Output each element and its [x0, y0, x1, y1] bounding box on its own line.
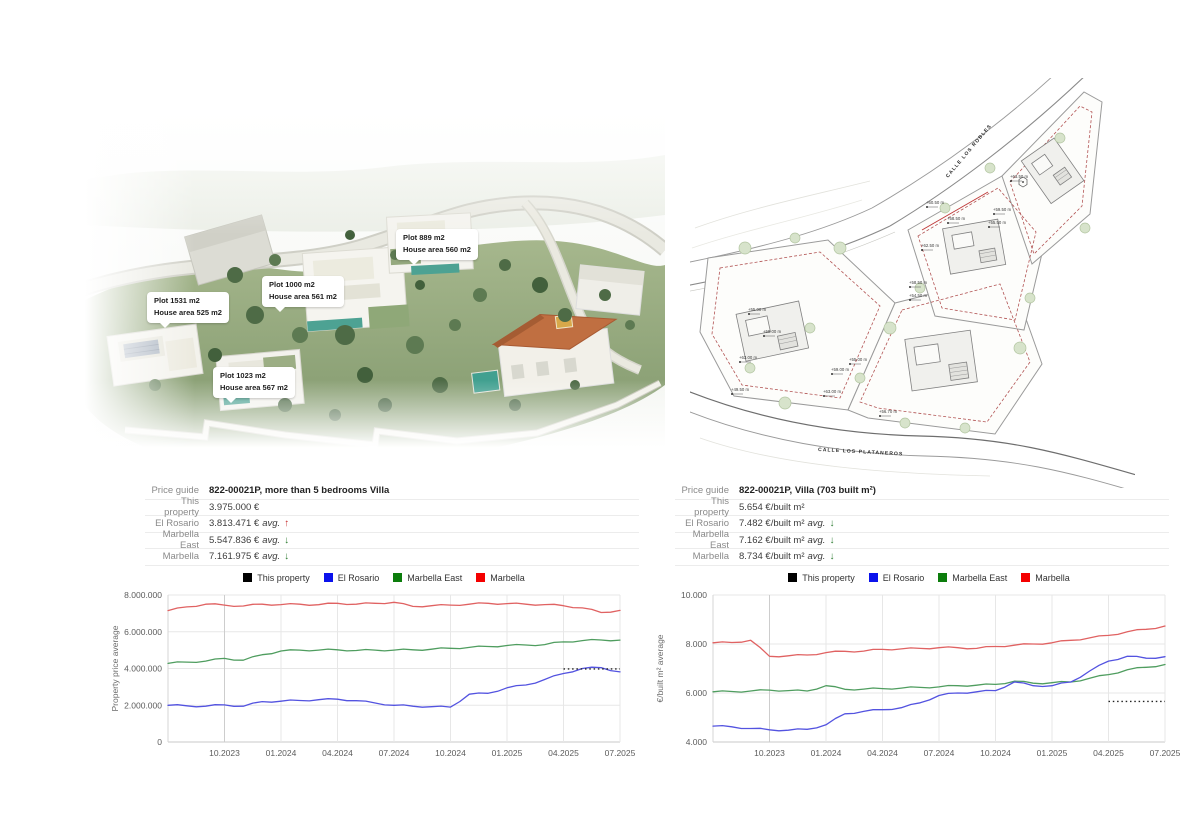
callout-line: House area 560 m2	[403, 244, 471, 256]
legend-item: Marbella East	[938, 573, 1007, 583]
footprint-mid	[943, 219, 1006, 274]
row-label: Marbella	[675, 551, 739, 562]
legend-label: Marbella East	[407, 573, 462, 583]
legend-swatch	[938, 573, 947, 582]
table-row: Marbella8.734 €/built m²avg.↓	[675, 549, 1169, 566]
legend-swatch	[476, 573, 485, 582]
plot-callout-889: Plot 889 m2 House area 560 m2	[396, 229, 478, 260]
price-guide-table-right: Price guide822-00021P, Villa (703 built …	[675, 483, 1169, 566]
svg-text:Property price average: Property price average	[110, 625, 120, 711]
plot-callout-1023: Plot 1023 m2 House area 567 m2	[213, 367, 295, 398]
row-label: El Rosario	[675, 518, 739, 529]
svg-text:+62.50 m: +62.50 m	[921, 243, 939, 248]
sqm-chart-block: This propertyEl RosarioMarbella EastMarb…	[645, 570, 1185, 771]
avg-suffix: avg.	[807, 551, 825, 562]
svg-text:04.2025: 04.2025	[548, 748, 579, 758]
svg-text:10.2023: 10.2023	[754, 748, 785, 758]
svg-text:07.2024: 07.2024	[379, 748, 410, 758]
callout-line: House area 561 m2	[269, 291, 337, 303]
svg-text:+58.50 m: +58.50 m	[909, 280, 927, 285]
svg-text:+56.70 m: +56.70 m	[879, 409, 897, 414]
avg-suffix: avg.	[262, 551, 280, 562]
svg-text:07.2025: 07.2025	[605, 748, 636, 758]
svg-text:+55.50 m: +55.50 m	[988, 220, 1006, 225]
table-row: Marbella7.161.975 €avg.↓	[145, 549, 639, 566]
svg-text:07.2025: 07.2025	[1150, 748, 1181, 758]
svg-text:10.2023: 10.2023	[209, 748, 240, 758]
legend-item: Marbella	[1021, 573, 1070, 583]
legend-item: El Rosario	[869, 573, 925, 583]
svg-text:+59.50 m: +59.50 m	[993, 207, 1011, 212]
svg-text:+54.50 m: +54.50 m	[909, 293, 927, 298]
callout-line: Plot 1000 m2	[269, 279, 337, 291]
footprint-center	[905, 330, 978, 391]
callout-line: Plot 1531 m2	[154, 295, 222, 307]
svg-text:+59.00 m: +59.00 m	[763, 329, 781, 334]
svg-text:01.2024: 01.2024	[811, 748, 842, 758]
table-row: Price guide822-00021P, more than 5 bedro…	[145, 483, 639, 500]
svg-text:01.2025: 01.2025	[492, 748, 523, 758]
trend-down-icon: ↓	[284, 535, 289, 546]
svg-text:10.000: 10.000	[681, 590, 707, 600]
price-guide-table-left: Price guide822-00021P, more than 5 bedro…	[145, 483, 639, 566]
legend-label: El Rosario	[883, 573, 925, 583]
aerial-render-scene	[85, 85, 665, 470]
price-chart-block: This propertyEl RosarioMarbella EastMarb…	[100, 570, 640, 771]
table-row: Marbella East7.162 €/built m²avg.↓	[675, 533, 1169, 550]
legend-label: Marbella East	[952, 573, 1007, 583]
legend-label: El Rosario	[338, 573, 380, 583]
svg-text:+55.00 m: +55.00 m	[748, 307, 766, 312]
avg-suffix: avg.	[807, 518, 825, 529]
table-row: Marbella East5.547.836 €avg.↓	[145, 533, 639, 550]
svg-text:+60.50 m: +60.50 m	[926, 200, 944, 205]
table-row: El Rosario7.482 €/built m²avg.↓	[675, 516, 1169, 533]
svg-text:04.2024: 04.2024	[867, 748, 898, 758]
table-row: This property3.975.000 €	[145, 500, 639, 517]
row-value: 822-00021P, more than 5 bedrooms Villa	[209, 485, 389, 496]
callout-line: Plot 1023 m2	[220, 370, 288, 382]
callout-line: House area 525 m2	[154, 307, 222, 319]
site-plan-image[interactable]: CALLE LOS ROBLES CALLE LOS PLATANEROS +6…	[690, 78, 1135, 488]
legend-swatch	[324, 573, 333, 582]
price-per-sqm-chart[interactable]: 4.0006.0008.00010.00010.202301.202404.20…	[645, 585, 1185, 771]
row-value: 7.162 €/built m²	[739, 535, 804, 546]
legend-label: This property	[802, 573, 855, 583]
svg-text:8.000.000: 8.000.000	[124, 590, 162, 600]
avg-suffix: avg.	[262, 518, 280, 529]
property-valuation-report: { "render": { "callouts": [ {"line1": "P…	[0, 0, 1200, 818]
legend-label: Marbella	[490, 573, 525, 583]
trend-up-icon: ↑	[284, 518, 289, 529]
legend-swatch	[393, 573, 402, 582]
table-row: El Rosario3.813.471 €avg.↑	[145, 516, 639, 533]
legend-swatch	[788, 573, 797, 582]
trend-down-icon: ↓	[284, 551, 289, 562]
row-value: 5.654 €/built m²	[739, 502, 804, 513]
legend-label: Marbella	[1035, 573, 1070, 583]
avg-suffix: avg.	[807, 535, 825, 546]
legend-item: This property	[243, 573, 310, 583]
avg-suffix: avg.	[262, 535, 280, 546]
row-label: El Rosario	[145, 518, 209, 529]
legend-label: This property	[257, 573, 310, 583]
svg-text:+55.00 m: +55.00 m	[849, 357, 867, 362]
svg-text:+58.50 m: +58.50 m	[947, 216, 965, 221]
table-row: Price guide822-00021P, Villa (703 built …	[675, 483, 1169, 500]
trend-down-icon: ↓	[829, 518, 834, 529]
row-value: 3.813.471 €	[209, 518, 259, 529]
svg-text:0: 0	[157, 737, 162, 747]
svg-text:+63.00 m: +63.00 m	[823, 389, 841, 394]
svg-text:+49.50 m: +49.50 m	[731, 387, 749, 392]
svg-text:+59.00 m: +59.00 m	[831, 367, 849, 372]
row-label: Price guide	[145, 485, 209, 496]
svg-text:6.000: 6.000	[686, 688, 708, 698]
row-value: 3.975.000 €	[209, 502, 259, 513]
svg-text:€/built m² average: €/built m² average	[655, 634, 665, 702]
aerial-render-image[interactable]: Plot 1531 m2 House area 525 m2 Plot 1000…	[85, 85, 665, 470]
row-value: 8.734 €/built m²	[739, 551, 804, 562]
chart-legend: This propertyEl RosarioMarbella EastMarb…	[645, 570, 1185, 585]
legend-swatch	[243, 573, 252, 582]
svg-text:10.2024: 10.2024	[435, 748, 466, 758]
svg-text:+63.50 m: +63.50 m	[1010, 174, 1028, 179]
plot-callout-1531: Plot 1531 m2 House area 525 m2	[147, 292, 229, 323]
legend-swatch	[1021, 573, 1030, 582]
callout-line: Plot 889 m2	[403, 232, 471, 244]
site-plan-drawing: CALLE LOS ROBLES CALLE LOS PLATANEROS +6…	[690, 78, 1135, 488]
svg-text:6.000.000: 6.000.000	[124, 627, 162, 637]
chart-legend: This propertyEl RosarioMarbella EastMarb…	[100, 570, 640, 585]
trend-down-icon: ↓	[829, 535, 834, 546]
row-value: 822-00021P, Villa (703 built m²)	[739, 485, 876, 496]
row-value: 7.161.975 €	[209, 551, 259, 562]
legend-item: El Rosario	[324, 573, 380, 583]
legend-item: This property	[788, 573, 855, 583]
svg-text:01.2024: 01.2024	[266, 748, 297, 758]
row-label: This property	[145, 496, 209, 518]
svg-text:+63.00 m: +63.00 m	[739, 355, 757, 360]
svg-text:01.2025: 01.2025	[1037, 748, 1068, 758]
property-price-chart[interactable]: 02.000.0004.000.0006.000.0008.000.00010.…	[100, 585, 640, 771]
row-label: Price guide	[675, 485, 739, 496]
row-label: Marbella East	[675, 529, 739, 551]
svg-text:07.2024: 07.2024	[924, 748, 955, 758]
legend-swatch	[869, 573, 878, 582]
legend-item: Marbella	[476, 573, 525, 583]
svg-text:04.2024: 04.2024	[322, 748, 353, 758]
row-value: 5.547.836 €	[209, 535, 259, 546]
plot-callout-1000: Plot 1000 m2 House area 561 m2	[262, 276, 344, 307]
row-value: 7.482 €/built m²	[739, 518, 804, 529]
row-label: Marbella East	[145, 529, 209, 551]
svg-text:8.000: 8.000	[686, 639, 708, 649]
row-label: Marbella	[145, 551, 209, 562]
svg-text:4.000.000: 4.000.000	[124, 664, 162, 674]
trend-down-icon: ↓	[829, 551, 834, 562]
callout-line: House area 567 m2	[220, 382, 288, 394]
table-row: This property5.654 €/built m²	[675, 500, 1169, 517]
neighbour-building-2	[576, 265, 644, 315]
row-label: This property	[675, 496, 739, 518]
svg-text:04.2025: 04.2025	[1093, 748, 1124, 758]
svg-text:2.000.000: 2.000.000	[124, 700, 162, 710]
svg-text:4.000: 4.000	[686, 737, 708, 747]
legend-item: Marbella East	[393, 573, 462, 583]
svg-text:10.2024: 10.2024	[980, 748, 1011, 758]
